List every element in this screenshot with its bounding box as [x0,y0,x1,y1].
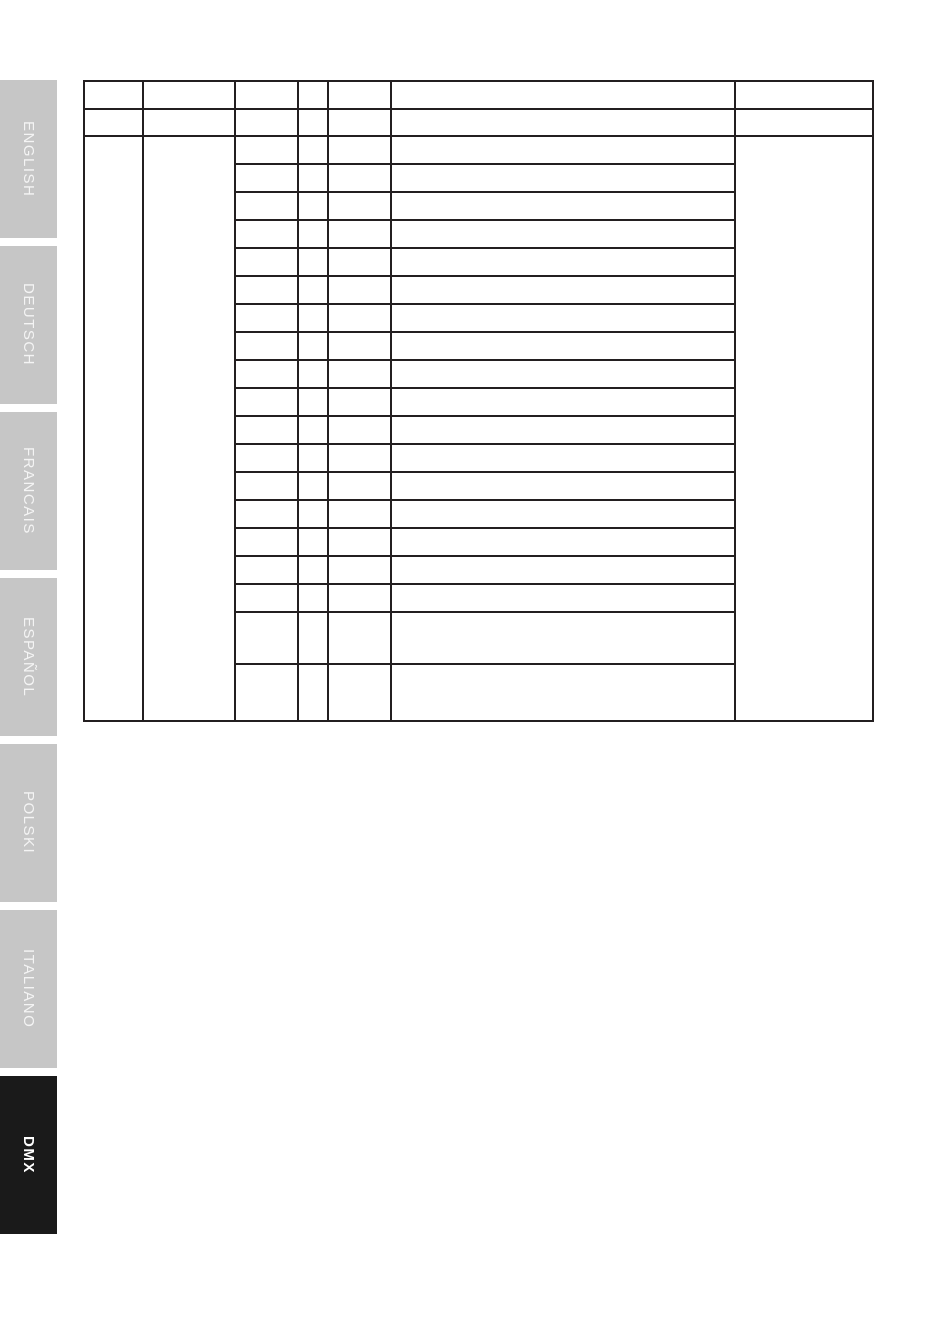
sub-row-cell [298,220,328,248]
sub-row-cell [235,332,298,360]
sidebar-tab-deutsch: DEUTSCH [0,246,57,404]
merged-cell-col2 [143,136,235,721]
sub-row-cell [235,276,298,304]
sub-row-cell [235,388,298,416]
sub-row-cell [235,500,298,528]
row-cell [143,109,235,136]
merged-cell-col1 [84,136,143,721]
sub-row-cell [235,192,298,220]
sub-row-cell [328,528,391,556]
sub-row-cell [328,276,391,304]
sub-row-cell [298,612,328,664]
sub-row-cell [235,528,298,556]
sub-row-cell [328,220,391,248]
sub-row-cell [391,528,735,556]
merged-cell-col7 [735,136,873,721]
sub-row-cell [391,164,735,192]
sub-row-cell [391,360,735,388]
sub-row-cell [328,416,391,444]
header-cell [235,81,298,109]
sub-row-cell [328,584,391,612]
sub-row-cell [298,500,328,528]
table-header-row [84,81,873,109]
row-cell [235,109,298,136]
sidebar-tab-dmx: DMX [0,1076,57,1234]
sub-row-cell [328,248,391,276]
sub-row-cell [298,416,328,444]
sub-row-cell [328,332,391,360]
sidebar-tab-label: ESPAÑOL [20,617,37,697]
row-cell [735,109,873,136]
sub-row-cell [391,136,735,164]
sub-row-cell [391,584,735,612]
sub-row-cell [391,612,735,664]
sidebar-tab-francais: FRANCAIS [0,412,57,570]
sub-row-cell [391,416,735,444]
sidebar-tab-label: DMX [20,1136,37,1174]
row-cell [328,109,391,136]
sub-row-cell [391,556,735,584]
sub-row-cell [235,304,298,332]
sub-row-cell [235,248,298,276]
sidebar-tab-label: DEUTSCH [20,283,37,366]
sub-row-cell [298,528,328,556]
sub-row-cell [328,304,391,332]
row-cell [84,109,143,136]
sub-row-cell [328,500,391,528]
dmx-table [83,80,874,722]
sub-row-cell [328,612,391,664]
sub-row-cell [298,444,328,472]
header-cell [298,81,328,109]
header-cell [143,81,235,109]
sub-row-cell [235,664,298,721]
dmx-table-body [84,81,873,721]
sub-row-cell [328,556,391,584]
sub-row-cell [391,388,735,416]
sub-row-cell [235,584,298,612]
header-cell [735,81,873,109]
header-cell [391,81,735,109]
sub-row-cell [391,304,735,332]
sub-row-cell [328,360,391,388]
sub-row-cell [328,192,391,220]
sidebar-tab-english: ENGLISH [0,80,57,238]
sub-row-cell [391,472,735,500]
sub-row-cell [391,248,735,276]
sub-row-cell [298,388,328,416]
row-cell [391,109,735,136]
sidebar-tab-espanol: ESPAÑOL [0,578,57,736]
table-sub-row [84,136,873,164]
table-row [84,109,873,136]
language-tab-rail: ENGLISH DEUTSCH FRANCAIS ESPAÑOL POLSKI … [0,80,57,1234]
sub-row-cell [298,556,328,584]
sub-row-cell [328,664,391,721]
sub-row-cell [235,220,298,248]
sidebar-tab-label: ENGLISH [20,121,37,197]
sub-row-cell [328,444,391,472]
sub-row-cell [298,164,328,192]
sub-row-cell [235,136,298,164]
sub-row-cell [298,276,328,304]
sub-row-cell [391,444,735,472]
sub-row-cell [391,192,735,220]
sub-row-cell [235,360,298,388]
header-cell [84,81,143,109]
sub-row-cell [298,360,328,388]
sub-row-cell [298,664,328,721]
sub-row-cell [391,664,735,721]
sub-row-cell [235,444,298,472]
sub-row-cell [235,472,298,500]
sidebar-tab-label: FRANCAIS [20,447,37,535]
sub-row-cell [391,500,735,528]
sidebar-tab-italiano: ITALIANO [0,910,57,1068]
sub-row-cell [328,164,391,192]
sub-row-cell [298,192,328,220]
sub-row-cell [298,472,328,500]
sidebar-tab-label: ITALIANO [20,949,37,1028]
sub-row-cell [235,416,298,444]
header-cell [328,81,391,109]
sub-row-cell [328,472,391,500]
row-cell [298,109,328,136]
sub-row-cell [235,612,298,664]
sub-row-cell [298,304,328,332]
sub-row-cell [235,556,298,584]
sub-row-cell [391,276,735,304]
sub-row-cell [298,332,328,360]
sub-row-cell [391,332,735,360]
sidebar-tab-label: POLSKI [20,791,37,854]
sub-row-cell [298,136,328,164]
manual-page: ENGLISH DEUTSCH FRANCAIS ESPAÑOL POLSKI … [0,0,950,1332]
sub-row-cell [391,220,735,248]
sub-row-cell [235,164,298,192]
sub-row-cell [298,248,328,276]
sidebar-tab-polski: POLSKI [0,744,57,902]
sub-row-cell [298,584,328,612]
sub-row-cell [328,136,391,164]
sub-row-cell [328,388,391,416]
